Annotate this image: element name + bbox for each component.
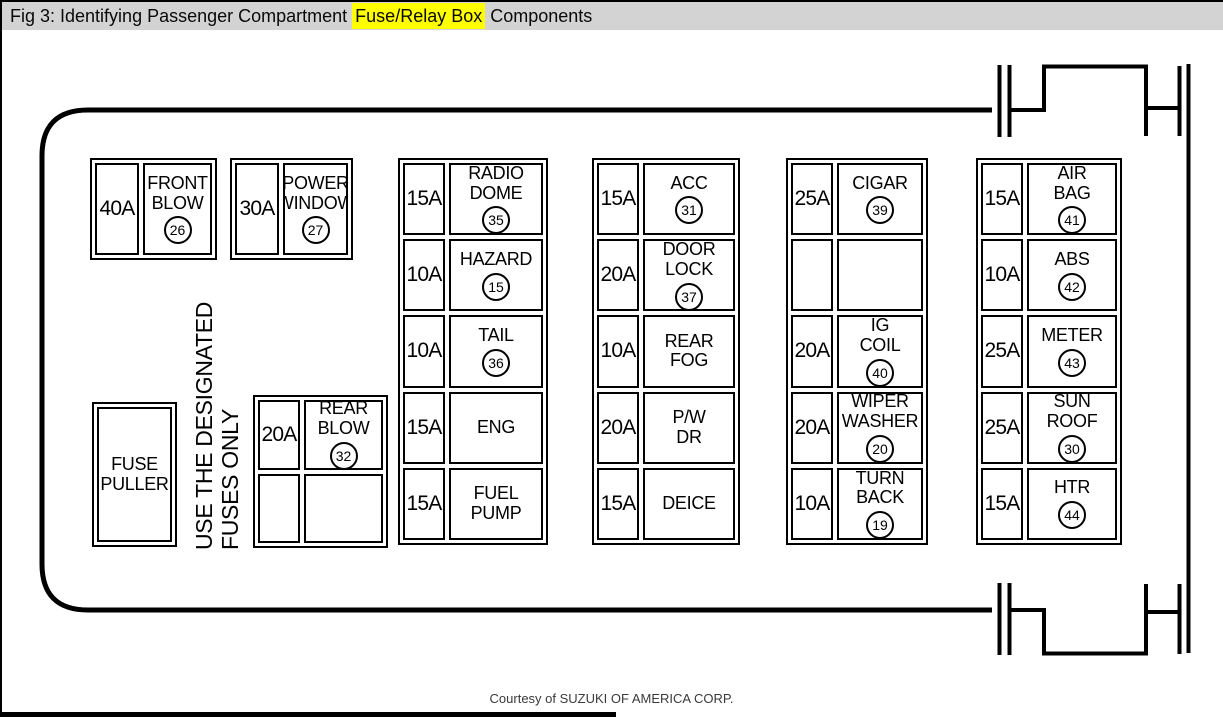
fuse-number-badge: 20 xyxy=(866,435,894,463)
fuse-amp: 20A xyxy=(791,315,833,387)
fuse-number-badge: 41 xyxy=(1058,206,1086,234)
fuse-number-badge: 44 xyxy=(1058,501,1086,529)
fuse-cell-label: REAR BLOW 32 xyxy=(304,400,383,470)
fuse-cell-label: REAR FOG xyxy=(643,315,735,387)
fuse-cell-label: DEICE xyxy=(643,468,735,540)
fuse-amp: 20A xyxy=(597,239,639,311)
fuse-cell-label: SUN ROOF 30 xyxy=(1027,392,1117,464)
fuse-name: FRONT BLOW xyxy=(147,174,208,214)
fuse-group-column2: 15A ACC 31 20A DOOR LOCK 37 10A REAR FOG… xyxy=(592,158,740,545)
fuse-number-badge: 40 xyxy=(866,359,894,387)
fuse-amp: 10A xyxy=(403,315,445,387)
fuse-cell-empty xyxy=(837,239,923,311)
fuse-name: DOOR LOCK xyxy=(663,240,716,280)
fuse-amp-empty xyxy=(258,474,300,544)
fuse-amp: 15A xyxy=(981,468,1023,540)
fuse-number-badge: 19 xyxy=(866,511,894,539)
fuse-name: ENG xyxy=(477,418,515,438)
fuse-amp: 25A xyxy=(981,392,1023,464)
fuse-amp: 20A xyxy=(258,400,300,470)
fuse-amp: 15A xyxy=(981,163,1023,235)
fuse-name: WIPER WASHER xyxy=(842,392,919,432)
fuse-cell-label: TAIL 36 xyxy=(449,315,543,387)
fuse-number-badge: 26 xyxy=(164,216,192,244)
fuse-cell-label: WIPER WASHER 20 xyxy=(837,392,923,464)
fuse-name: ABS xyxy=(1054,250,1089,270)
fuse-number-badge: 43 xyxy=(1058,349,1086,377)
fuse-number-badge: 42 xyxy=(1058,273,1086,301)
fuse-name: SUN ROOF xyxy=(1047,392,1098,432)
fuse-name: RADIO DOME xyxy=(468,164,524,204)
fuse-amp: 30A xyxy=(235,163,279,255)
fuse-name: FUEL PUMP xyxy=(471,484,522,524)
fuse-amp: 15A xyxy=(403,163,445,235)
fuse-amp: 15A xyxy=(403,392,445,464)
fuse-cell-label: DOOR LOCK 37 xyxy=(643,239,735,311)
fuse-cell-label: TURN BACK 19 xyxy=(837,468,923,540)
fuse-number-badge: 31 xyxy=(675,196,703,224)
fuse-name: TAIL xyxy=(478,326,513,346)
fuse-puller-label: FUSE PULLER xyxy=(100,455,168,495)
fuse-group-rear-blow: 20A REAR BLOW 32 xyxy=(253,395,388,548)
fuse-amp: 10A xyxy=(597,315,639,387)
fuse-group-power-window: 30A POWER WINDOW 27 xyxy=(230,158,353,260)
fuse-name: AIR BAG xyxy=(1053,164,1090,204)
fuse-name: P/W DR xyxy=(672,408,705,448)
fuse-name: METER xyxy=(1041,326,1103,346)
fuse-cell-label: RADIO DOME 35 xyxy=(449,163,543,235)
fuse-cell-label: ENG xyxy=(449,392,543,464)
fuse-name: ACC xyxy=(670,174,707,194)
fuse-amp: 15A xyxy=(597,468,639,540)
fuse-cell-label: CIGAR 39 xyxy=(837,163,923,235)
fuse-name: IG COIL xyxy=(860,316,901,356)
fuse-number-badge: 37 xyxy=(675,283,703,311)
fuse-cell-empty xyxy=(304,474,383,544)
fuse-cell-label: P/W DR xyxy=(643,392,735,464)
fuse-name: DEICE xyxy=(662,494,716,514)
fuse-name: POWER WINDOW xyxy=(283,174,348,214)
fuse-amp: 15A xyxy=(597,163,639,235)
fuse-group-column1: 15A RADIO DOME 35 10A HAZARD 15 10A TAIL… xyxy=(398,158,548,545)
fuse-amp: 10A xyxy=(403,239,445,311)
fuse-name: TURN BACK xyxy=(856,469,905,509)
fuse-number-badge: 30 xyxy=(1058,435,1086,463)
fuse-cell-label: METER 43 xyxy=(1027,315,1117,387)
fuse-number-badge: 15 xyxy=(482,273,510,301)
fuse-amp: 20A xyxy=(791,392,833,464)
fuse-cell-label: HAZARD 15 xyxy=(449,239,543,311)
courtesy-credit: Courtesy of SUZUKI OF AMERICA CORP. xyxy=(0,691,1223,706)
fuse-cell-label: IG COIL 40 xyxy=(837,315,923,387)
fuse-name: REAR BLOW xyxy=(318,400,370,439)
fuse-number-badge: 32 xyxy=(330,442,358,469)
fuse-cell-label: ACC 31 xyxy=(643,163,735,235)
designated-fuses-note: USE THE DESIGNATED FUSES ONLY xyxy=(191,300,245,550)
fuse-cell-label: AIR BAG 41 xyxy=(1027,163,1117,235)
fuse-number-badge: 27 xyxy=(302,216,330,244)
fuse-amp: 25A xyxy=(791,163,833,235)
fuse-cell-label: FUEL PUMP xyxy=(449,468,543,540)
fuse-number-badge: 35 xyxy=(482,206,510,234)
fuse-name: REAR FOG xyxy=(665,332,714,372)
fuse-group-column4: 15A AIR BAG 41 10A ABS 42 25A METER 43 2… xyxy=(976,158,1122,545)
fuse-cell-label: ABS 42 xyxy=(1027,239,1117,311)
fuse-puller-cell: FUSE PULLER xyxy=(97,407,172,542)
fuse-amp: 40A xyxy=(95,163,139,255)
fuse-name: HTR xyxy=(1054,478,1090,498)
fuse-name: HAZARD xyxy=(460,250,532,270)
fuse-amp: 10A xyxy=(981,239,1023,311)
fuse-puller-box: FUSE PULLER xyxy=(92,402,177,547)
fuse-group-front-blow: 40A FRONT BLOW 26 xyxy=(90,158,217,260)
fuse-cell-label: HTR 44 xyxy=(1027,468,1117,540)
fuse-amp: 15A xyxy=(403,468,445,540)
fuse-group-column3: 25A CIGAR 39 20A IG COIL 40 20A WIPER WA… xyxy=(786,158,928,545)
fuse-amp-empty xyxy=(791,239,833,311)
fuse-amp: 25A xyxy=(981,315,1023,387)
fuse-number-badge: 39 xyxy=(866,196,894,224)
fuse-number-badge: 36 xyxy=(482,349,510,377)
fuse-cell-label: FRONT BLOW 26 xyxy=(143,163,212,255)
fuse-cell-label: POWER WINDOW 27 xyxy=(283,163,348,255)
bottom-mounting-tab xyxy=(1000,583,1180,655)
fuse-amp: 20A xyxy=(597,392,639,464)
fuse-amp: 10A xyxy=(791,468,833,540)
fuse-name: CIGAR xyxy=(852,174,908,194)
